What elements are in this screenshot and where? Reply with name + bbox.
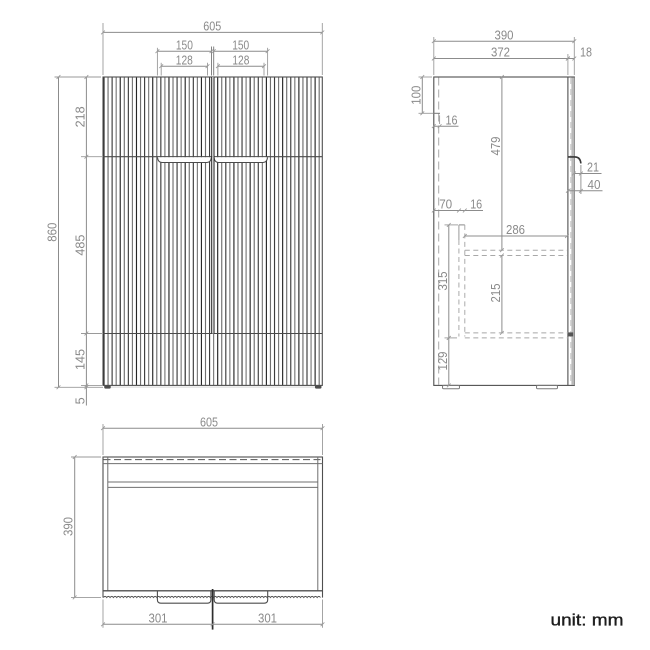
svg-text:315: 315 xyxy=(436,272,450,291)
svg-text:145: 145 xyxy=(73,349,87,370)
svg-text:5: 5 xyxy=(73,397,87,404)
svg-text:215: 215 xyxy=(489,284,503,303)
svg-text:18: 18 xyxy=(580,46,592,60)
svg-text:605: 605 xyxy=(203,20,221,34)
svg-text:21: 21 xyxy=(587,161,599,175)
svg-text:390: 390 xyxy=(62,517,76,536)
svg-text:218: 218 xyxy=(73,106,87,127)
svg-text:150: 150 xyxy=(232,38,249,52)
svg-text:40: 40 xyxy=(588,178,601,192)
svg-text:372: 372 xyxy=(491,46,510,60)
svg-text:128: 128 xyxy=(232,53,249,67)
svg-text:860: 860 xyxy=(46,223,60,242)
svg-text:286: 286 xyxy=(506,223,525,237)
svg-text:16: 16 xyxy=(446,114,458,128)
svg-text:390: 390 xyxy=(495,28,514,42)
svg-text:129: 129 xyxy=(436,352,450,371)
svg-text:485: 485 xyxy=(73,235,87,256)
svg-text:16: 16 xyxy=(470,198,482,212)
svg-text:605: 605 xyxy=(200,415,218,429)
svg-text:70: 70 xyxy=(439,198,452,212)
svg-text:100: 100 xyxy=(409,86,423,105)
svg-text:301: 301 xyxy=(149,611,168,625)
svg-text:301: 301 xyxy=(258,611,277,625)
svg-text:128: 128 xyxy=(176,53,193,67)
svg-text:unit: mm: unit: mm xyxy=(551,612,624,630)
svg-text:479: 479 xyxy=(489,137,503,156)
svg-text:150: 150 xyxy=(176,38,193,52)
